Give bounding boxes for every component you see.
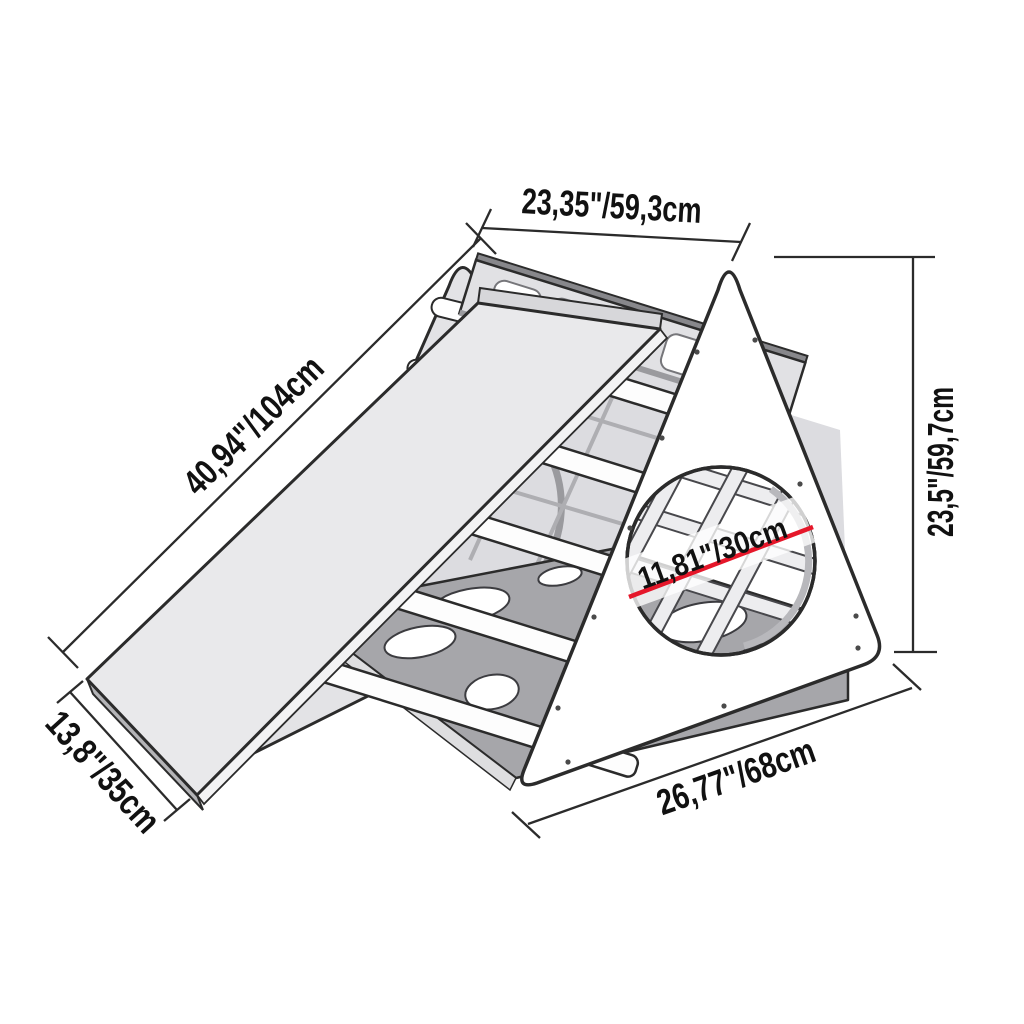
dim-tick xyxy=(57,681,83,703)
dim-tick xyxy=(512,812,540,838)
dim-tick xyxy=(164,799,190,821)
climbing-triangle-diagram: 23,35"/59,3cm 40,94"/104cm 13,8"/35cm 23… xyxy=(0,0,1024,1024)
label-top-width: 23,35"/59,3cm xyxy=(521,180,703,231)
label-height: 23,5"/59,7cm xyxy=(920,387,961,537)
dimension-diagram: 23,35"/59,3cm 40,94"/104cm 13,8"/35cm 23… xyxy=(0,0,1024,1024)
dim-line xyxy=(482,228,741,242)
label-base-width: 26,77"/68cm xyxy=(651,729,820,823)
dim-tick xyxy=(893,664,921,690)
